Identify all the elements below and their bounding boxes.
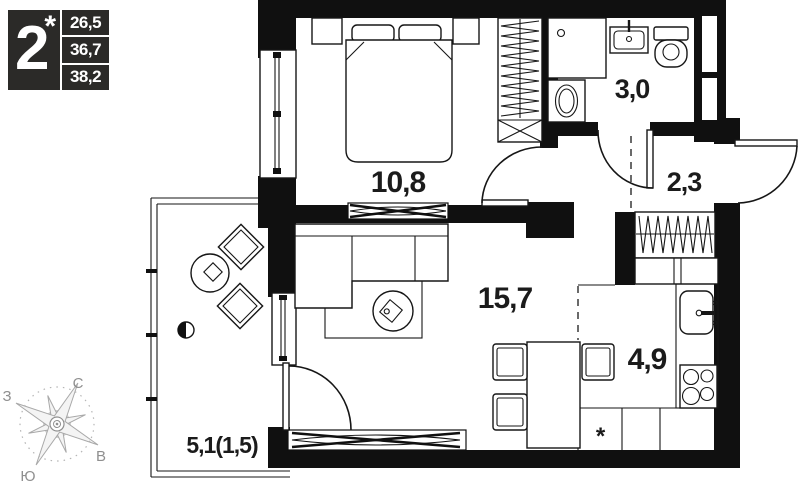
rooms-count-box: 2 * xyxy=(8,10,60,90)
toilet xyxy=(654,27,688,67)
bedroom-wardrobe xyxy=(498,18,542,142)
apartment-spec-badge: 2 * 26,5 36,7 38,2 xyxy=(8,10,109,90)
coffee-table xyxy=(373,291,413,331)
nightstand-right xyxy=(453,18,479,44)
balcony-chair-2 xyxy=(217,283,262,328)
radiator-symbol-top xyxy=(348,203,448,219)
compass-south-label: Ю xyxy=(20,468,35,483)
area-value-2: 36,7 xyxy=(62,37,109,62)
bathroom-door xyxy=(598,130,653,210)
floorplan-drawing: 10,8 3,0 2,3 15,7 4,9 5,1(1,5) * С З В Ю xyxy=(0,0,800,483)
radiator-symbol-bottom xyxy=(288,430,466,450)
dining-chair-1 xyxy=(493,344,527,380)
balcony-door xyxy=(283,363,351,430)
kitchen-sink xyxy=(680,291,717,334)
area-value-1: 26,5 xyxy=(62,10,109,35)
asterisk-mark: * xyxy=(44,10,56,44)
bedroom-window xyxy=(260,50,296,178)
compass-east-label: В xyxy=(96,448,106,465)
compass-west-label: З xyxy=(2,388,11,405)
area-value-3: 38,2 xyxy=(62,65,109,90)
compass-north-label: С xyxy=(73,375,84,392)
bathroom-sink xyxy=(610,20,648,53)
nightstand-left xyxy=(312,18,342,44)
balcony-lamp-symbol xyxy=(178,322,194,338)
bed xyxy=(312,18,479,162)
living-window xyxy=(272,293,296,365)
hallway-wardrobe xyxy=(635,212,715,258)
washing-machine xyxy=(548,80,585,122)
fridge-mark: * xyxy=(596,423,606,450)
balcony-table xyxy=(191,254,229,292)
living-area-label: 15,7 xyxy=(478,282,533,315)
bedroom-door xyxy=(482,147,542,206)
bathroom-area-label: 3,0 xyxy=(615,74,650,104)
dining-chair-2 xyxy=(493,394,527,430)
dining-table xyxy=(527,342,580,448)
balcony-area-label: 5,1(1,5) xyxy=(186,432,258,458)
shower-tray xyxy=(548,18,606,78)
kitchen-area-label: 4,9 xyxy=(628,343,667,376)
sofa xyxy=(295,224,448,308)
stove xyxy=(680,365,717,408)
compass-rose: С З В Ю xyxy=(0,362,119,483)
floorplan-page: 2 * 26,5 36,7 38,2 xyxy=(0,0,800,483)
entrance-door xyxy=(735,140,797,203)
dining-chair-3 xyxy=(582,344,614,380)
bedroom-area-label: 10,8 xyxy=(371,166,426,199)
areas-column: 26,5 36,7 38,2 xyxy=(62,10,109,90)
hallway-area-label: 2,3 xyxy=(667,167,703,197)
